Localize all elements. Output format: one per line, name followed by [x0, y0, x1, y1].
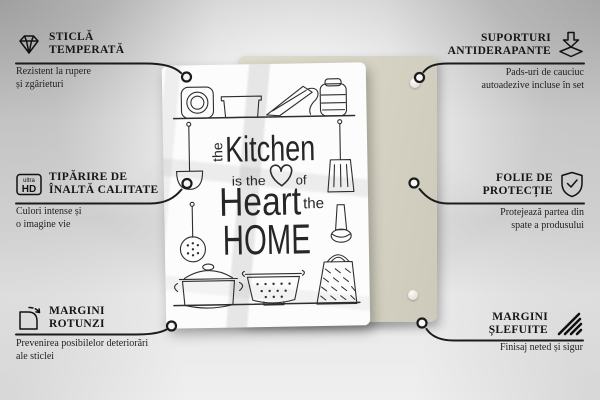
feature-description: Protejează partea din spate a produsului [412, 207, 584, 232]
slicer-icon [266, 86, 318, 116]
feature-title: MARGINI ROTUNZI [49, 305, 105, 331]
feature-tempered-glass: STICLĂ TEMPERATĂ Rezistent la rupere și … [16, 31, 188, 91]
peeler-icon [331, 205, 352, 243]
canister-icon [320, 79, 347, 116]
glass-panel: the Kitchen is the of Heart the HOME [162, 62, 371, 329]
product-infographic: the Kitchen is the of Heart the HOME [0, 0, 600, 400]
feature-title: FOLIE DE PROTECȚIE [483, 172, 553, 198]
feature-polished-edges: MARGINI ȘLEFUITE Finisaj neted și sigur [411, 311, 583, 355]
grater-icon [316, 254, 357, 304]
feature-hd-print: ultra HD TIPĂRIRE DE ÎNALTĂ CALITATE Cul… [16, 171, 188, 231]
jar-icon [181, 87, 214, 119]
hd-label: HD [22, 184, 36, 195]
artwork-phrase: the Kitchen is the of Heart the HOME [209, 127, 325, 264]
artwork-home: HOME [222, 215, 311, 264]
artwork-the-vertical: the [209, 142, 225, 162]
feature-title: TIPĂRIRE DE ÎNALTĂ CALITATE [49, 171, 158, 197]
spatula-icon [327, 119, 354, 191]
feature-title: STICLĂ TEMPERATĂ [49, 31, 124, 57]
rubber-pad [408, 290, 418, 300]
feature-anti-slip-supports: SUPORTURI ANTIDERAPANTE Pads-uri de cauc… [412, 31, 584, 92]
colander-icon [242, 270, 305, 305]
artwork-the-2: the [303, 195, 324, 212]
shield-check-icon [560, 171, 584, 198]
diamond-icon [16, 33, 42, 55]
feature-protective-film: FOLIE DE PROTECȚIE Protejează partea din… [412, 171, 584, 232]
feature-rounded-corners: MARGINI ROTUNZI Prevenirea posibilelor d… [16, 305, 188, 363]
feature-title: SUPORTURI ANTIDERAPANTE [448, 32, 551, 58]
artwork-kitchen: Kitchen [225, 127, 316, 170]
feature-description: Finisaj neted și sigur [411, 342, 583, 355]
pot-icon [174, 263, 243, 308]
rounded-corner-icon [16, 306, 42, 331]
polished-edge-icon [555, 312, 583, 336]
feature-title: MARGINI ȘLEFUITE [489, 311, 548, 337]
feature-description: Pads-uri de cauciuc autoadezive incluse … [412, 67, 584, 92]
anti-slip-pads-icon [558, 31, 584, 58]
bowl-icon [221, 96, 261, 118]
feature-description: Prevenirea posibilelor deteriorări ale s… [16, 338, 188, 363]
feature-description: Culori intense și o imagine vie [16, 206, 188, 231]
feature-description: Rezistent la rupere și zgârieturi [16, 66, 188, 91]
kitchen-artwork: the Kitchen is the of Heart the HOME [162, 62, 371, 329]
ultra-hd-icon: ultra HD [16, 173, 42, 196]
